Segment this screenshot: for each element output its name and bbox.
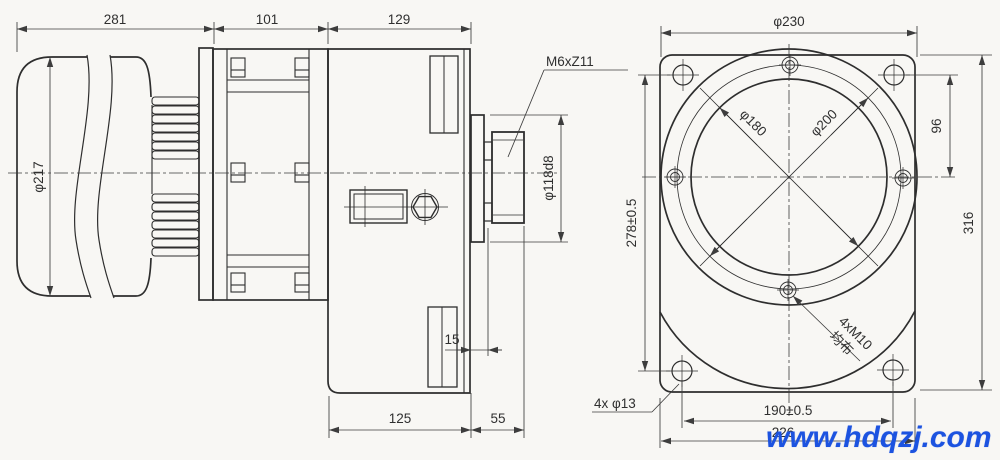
coupling-bolts <box>231 58 309 292</box>
spline-label: M6xZ11 <box>546 54 594 69</box>
front-view-dim-labels: φ230 φ180 φ200 96 278±0.5 316 190±0.5 22… <box>594 14 976 440</box>
dim-overall-height: 316 <box>961 212 976 235</box>
side-view-dim-labels: 281 101 129 φ217 M6xZ11 φ118d8 15 125 55 <box>31 12 594 426</box>
dim-bore-diameter: φ180 <box>737 106 770 139</box>
dim-hole-offset: 96 <box>929 118 944 133</box>
tapped-holes-label: 4xM10 均布 <box>824 314 875 365</box>
coupling-housing <box>213 49 328 300</box>
output-shaft-assembly <box>471 115 524 242</box>
dim-motor-length: 281 <box>104 12 127 27</box>
dim-motor-diameter: φ217 <box>31 161 46 192</box>
housing-lower-arc <box>660 311 915 389</box>
dim-coupling-length: 101 <box>256 12 279 27</box>
dim-bolt-circle-diameter: φ200 <box>807 106 840 139</box>
dim-boss-diameter: φ118d8 <box>541 155 556 200</box>
front-view-dimensions <box>592 26 992 448</box>
motor-cooling-fins <box>152 97 199 256</box>
mounting-flange-square <box>660 55 915 392</box>
dim-hole-pitch-vertical: 278±0.5 <box>624 199 639 248</box>
corner-holes-label: 4x φ13 <box>594 396 636 411</box>
oil-plug-assembly <box>344 186 448 227</box>
splined-spigot <box>492 132 524 223</box>
dim-shaft-length: 55 <box>490 411 505 426</box>
engineering-drawing-canvas: 281 101 129 φ217 M6xZ11 φ118d8 15 125 55 <box>0 0 1000 460</box>
watermark-url: www.hdqzj.com <box>766 421 992 455</box>
dim-gearbox-length: 129 <box>388 12 411 27</box>
front-view <box>660 49 917 392</box>
dim-hole-pitch-horizontal: 190±0.5 <box>764 403 813 418</box>
dim-base-length: 125 <box>389 411 412 426</box>
motor-flange-plate <box>199 48 213 300</box>
dim-spigot-length: 15 <box>444 332 459 347</box>
dim-flange-diameter: φ230 <box>773 14 804 29</box>
gear-motor-drawing: 281 101 129 φ217 M6xZ11 φ118d8 15 125 55 <box>0 0 1000 460</box>
